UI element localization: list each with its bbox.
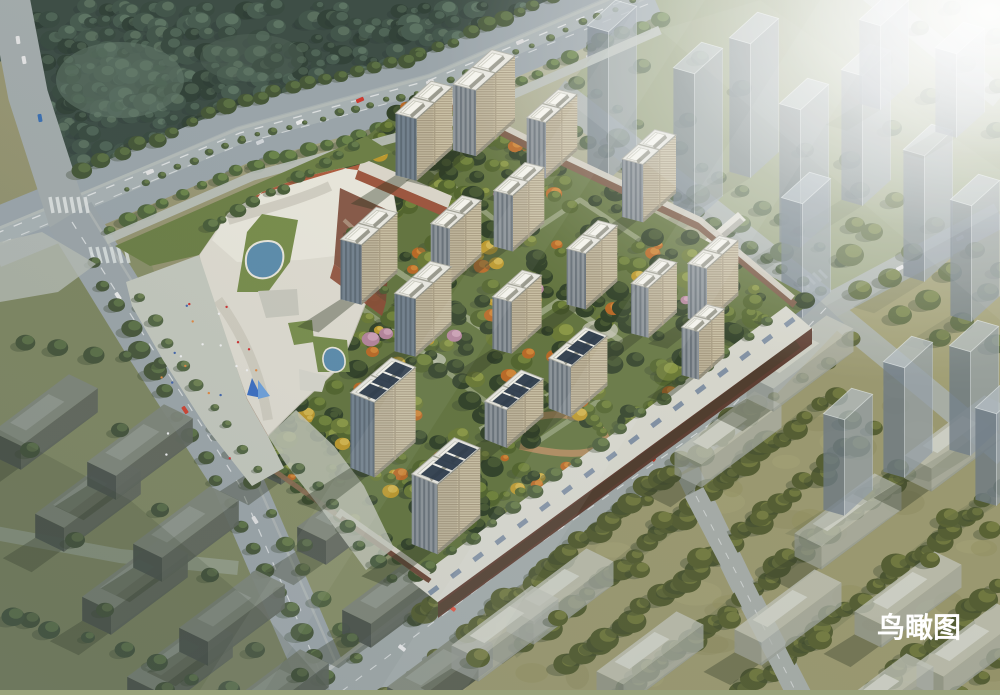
svg-text:鸟瞰图: 鸟瞰图 (877, 611, 961, 643)
